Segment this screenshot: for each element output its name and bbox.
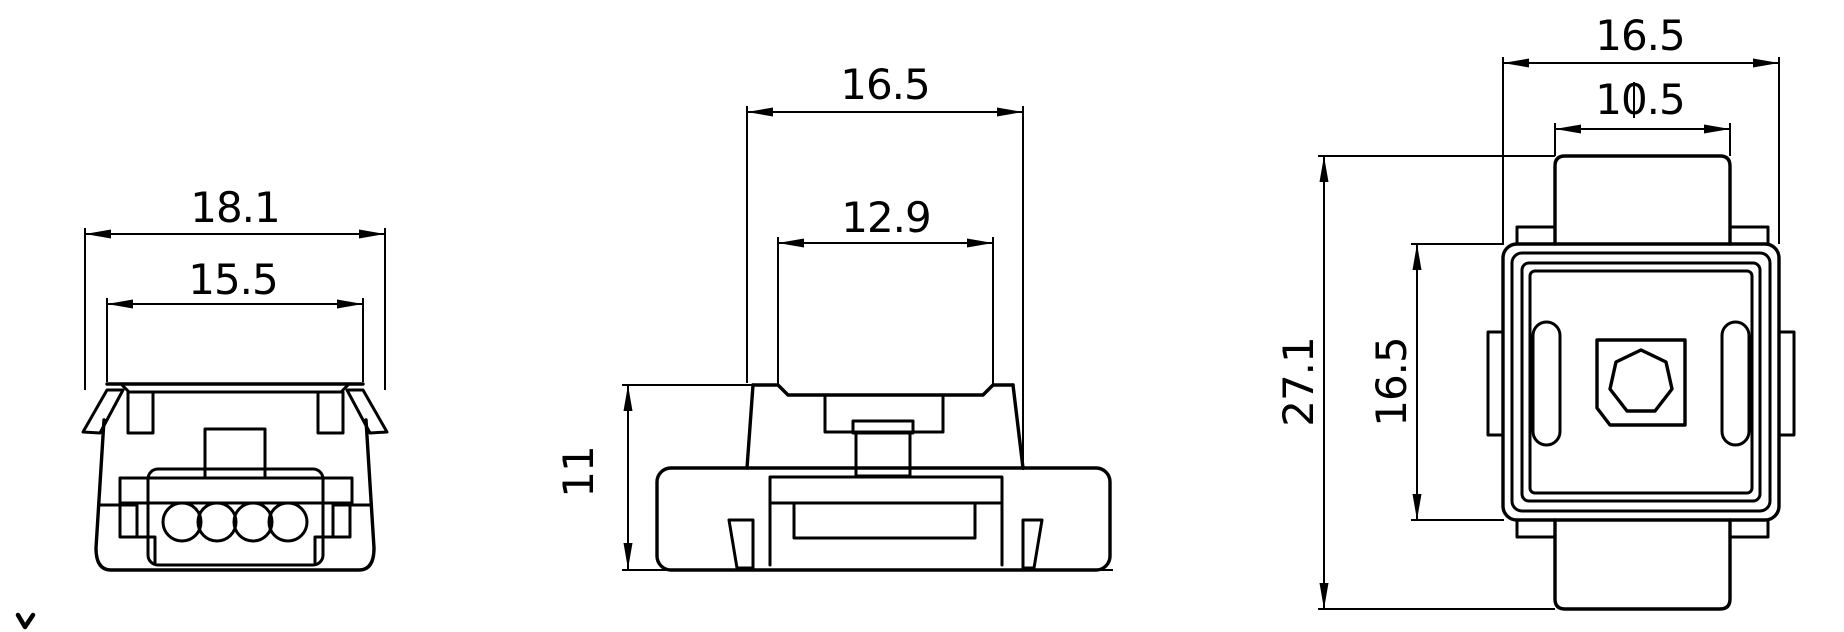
front-contact-4 [269,503,307,541]
extension-lines [1318,156,1555,609]
front-stem [205,429,265,478]
arrow-left-icon [85,230,111,239]
side-view: 16.5 12.9 11 [554,60,1113,570]
dim-label-front-overall-width: 18.1 [190,183,280,232]
arrow-left-icon [747,108,773,117]
side-left-foot [729,520,753,568]
top-upper-block [1555,156,1730,244]
top-dim-body-depth: 16.5 [1367,244,1504,520]
arrow-right-icon [337,300,363,309]
arrow-down-icon [624,543,633,569]
top-body-outer [1503,244,1779,520]
arrow-down-icon [1320,583,1329,609]
arrow-up-icon [1320,156,1329,182]
front-body-outline [96,420,374,570]
dim-label-top-cap-width: 10.5 [1595,75,1685,124]
arrow-up-icon [624,385,633,411]
arrow-right-icon [967,239,993,248]
top-right-slot [1722,322,1749,445]
side-plunger [825,395,943,432]
top-left-side-tab [1488,332,1503,435]
front-right-clip [318,392,343,433]
extension-lines [1411,244,1504,520]
arrow-left-icon [1503,59,1529,68]
arrow-right-icon [1704,125,1730,134]
top-body-frame-1 [1512,253,1770,511]
extension-lines [747,106,1023,470]
side-view-part [622,385,1113,570]
arrow-left-icon [107,300,133,309]
top-body-frame-2 [1522,263,1760,501]
top-right-side-tab [1779,332,1794,435]
technical-drawing-page: 18.1 15.5 [0,0,1844,632]
side-housing-sides [747,385,1023,468]
side-dim-recess-width: 12.9 [778,193,993,385]
top-upper-left-tab [1517,227,1555,244]
extension-lines [778,237,993,385]
top-lower-left-tab [1517,520,1555,537]
front-view-part [83,384,387,570]
top-left-slot [1533,322,1560,445]
front-contact-3 [234,503,272,541]
arrow-up-icon [1413,244,1422,270]
side-dim-width: 16.5 [747,60,1023,470]
side-base-slot [794,503,975,538]
extension-lines [1555,123,1730,156]
dim-label-top-width: 16.5 [1595,11,1685,60]
side-housing-top [753,385,1013,395]
extension-lines [107,298,363,382]
axis-marker-chevron-icon [18,615,33,627]
front-dim-top-width: 15.5 [107,255,363,382]
top-body-frame-3 [1530,271,1752,493]
front-left-clip [128,392,153,433]
extension-lines [85,228,385,390]
top-dim-width: 16.5 [1503,11,1779,244]
arrow-left-icon [778,239,804,248]
side-dim-height: 11 [554,385,755,569]
front-plate [120,478,352,503]
arrow-down-icon [1413,494,1422,520]
technical-drawing-canvas: 18.1 15.5 [0,0,1844,632]
dim-label-front-top-width: 15.5 [188,255,278,304]
dim-label-side-width: 16.5 [840,60,930,109]
dim-label-side-recess-width: 12.9 [841,193,931,242]
top-lower-right-tab [1730,520,1768,537]
dim-label-side-height: 11 [554,446,603,497]
side-right-foot [1023,520,1042,568]
top-lower-block [1555,520,1730,609]
dim-label-top-overall-depth: 27.1 [1274,337,1323,427]
arrow-right-icon [1753,59,1779,68]
top-view: 16.5 10.5 27.1 16.5 [1274,11,1794,609]
top-upper-right-tab [1730,227,1768,244]
dim-label-top-body-depth: 16.5 [1367,337,1416,427]
top-view-part [1488,156,1794,609]
top-hex-hole [1610,350,1672,411]
arrow-right-icon [359,230,385,239]
front-contact-1 [163,503,201,541]
front-view: 18.1 15.5 [83,183,387,570]
arrow-left-icon [1555,125,1581,134]
front-contact-2 [198,503,236,541]
top-dim-cap-width: 10.5 [1555,75,1730,156]
arrow-right-icon [997,108,1023,117]
side-base-cavity [770,477,1002,565]
